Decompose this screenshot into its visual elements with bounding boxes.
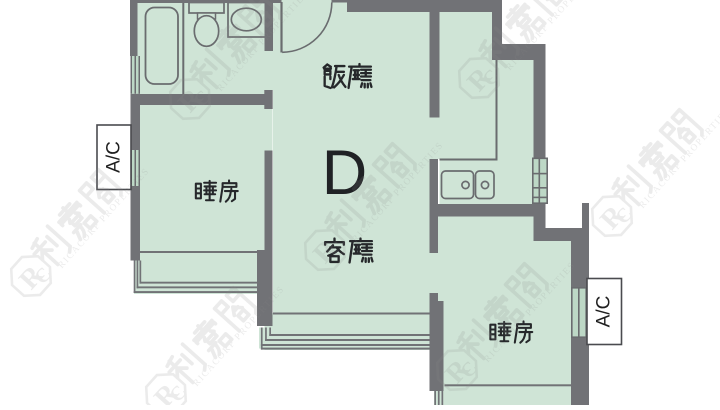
svg-text:A/C: A/C bbox=[594, 296, 615, 328]
svg-text:D: D bbox=[322, 138, 368, 208]
svg-text:A/C: A/C bbox=[104, 141, 125, 173]
